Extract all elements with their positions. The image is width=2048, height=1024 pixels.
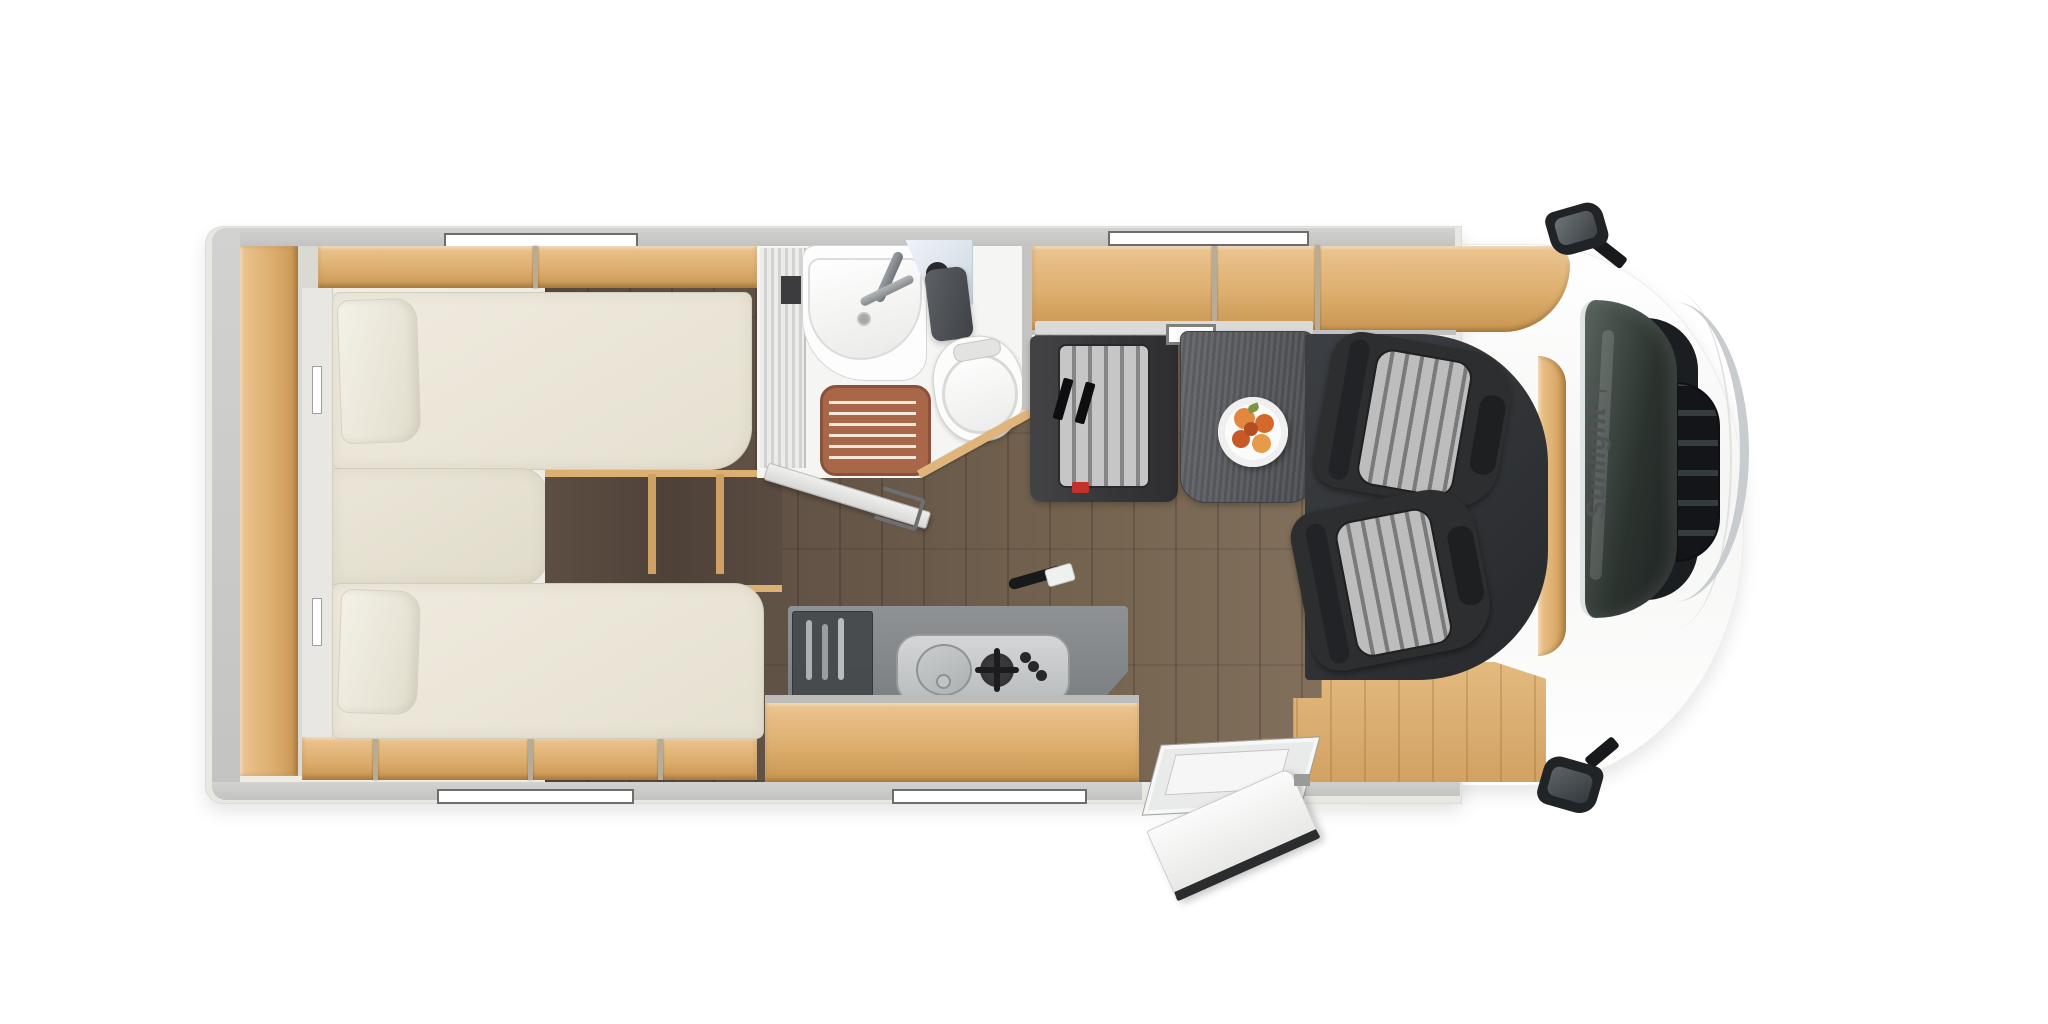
rear-wall-shelf: [240, 246, 298, 776]
utensil-2: [822, 624, 828, 680]
rear-wall: [212, 228, 240, 800]
bed-pillow-top: [337, 298, 422, 445]
shower-niche: [781, 276, 801, 304]
floorplan-stage: Sunlight: [0, 0, 2048, 1024]
cutlery-drawer: [792, 611, 873, 700]
shelf-divider-bottom-3: [658, 737, 663, 780]
cabinet-handle-bottom: [312, 598, 322, 646]
window-bottom-kitchen: [892, 789, 1087, 804]
cabinet-handle-top: [312, 366, 322, 414]
bed-middle-platform: [332, 468, 547, 585]
shelf-divider-bottom-2: [528, 737, 533, 780]
overhead-locker-band: [1032, 246, 1570, 332]
utensil-1: [806, 620, 812, 680]
locker-divider-1: [1212, 246, 1217, 332]
sink-drain: [857, 312, 871, 326]
brand-logo-text: Sunlight: [1581, 407, 1612, 519]
locker-divider-2: [1315, 246, 1320, 332]
mid-storage-shelves: [545, 470, 782, 592]
utensil-3: [838, 618, 844, 680]
brand-logo: Sunlight: [1516, 432, 1676, 468]
passenger-seat: [1286, 482, 1498, 676]
kitchen-sink-drain: [936, 674, 951, 689]
burner-cross-v: [994, 648, 1000, 692]
hob-knob-3: [1036, 670, 1047, 681]
bed-pillow-bottom: [337, 589, 421, 716]
side-mirror-top: [1548, 206, 1628, 276]
storage-divider-2: [716, 474, 724, 574]
kitchen-front-panel: [765, 703, 1139, 782]
window-top-dinette: [1108, 231, 1309, 246]
side-mirror-bottom: [1540, 732, 1620, 820]
counter-lip: [765, 695, 1139, 703]
shelf-divider-top: [533, 246, 538, 288]
shower-mat-slats: [829, 393, 916, 462]
window-bottom-rear: [437, 789, 634, 804]
vanity-column: [924, 266, 974, 343]
door-hinge-stub: [1294, 774, 1310, 786]
bench-cushion: [1058, 344, 1150, 488]
fruit-5: [1244, 422, 1258, 436]
shelf-divider-bottom-1: [373, 737, 378, 780]
belt-buckle-red: [1072, 482, 1089, 493]
driver-seat: [1310, 327, 1519, 515]
bedside-cabinet-strip: [302, 288, 333, 737]
palm-tree-icon: [1584, 381, 1608, 403]
storage-divider-1: [648, 474, 656, 574]
fruit-4: [1252, 434, 1271, 453]
